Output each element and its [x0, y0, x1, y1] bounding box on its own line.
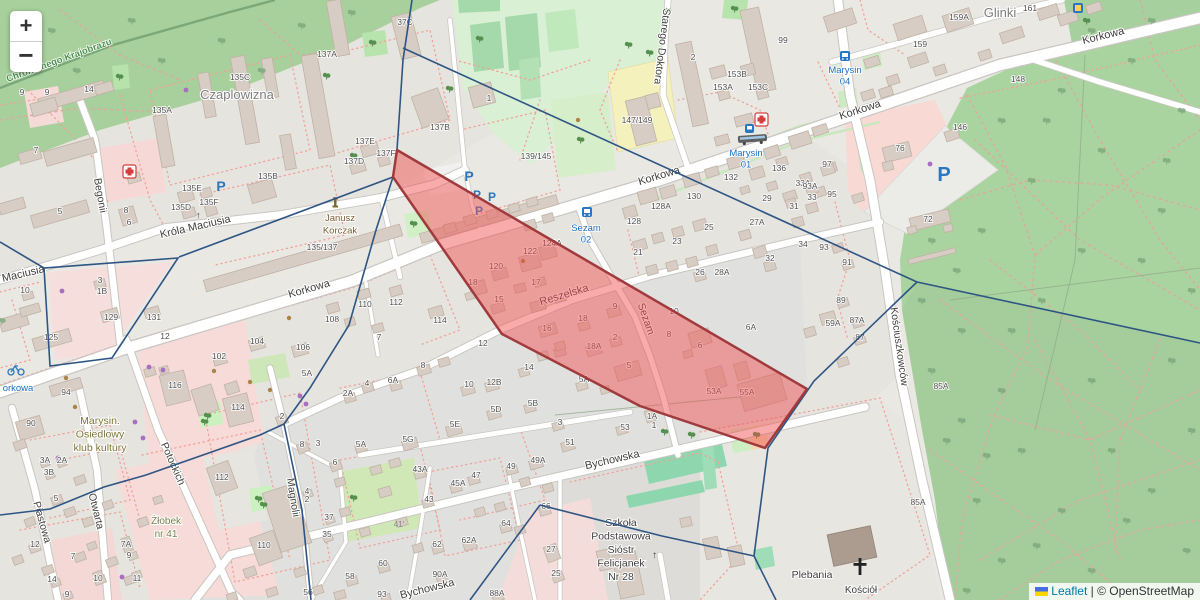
- svg-text:8: 8: [300, 439, 305, 449]
- svg-text:02: 02: [581, 235, 592, 246]
- svg-text:102: 102: [212, 351, 226, 361]
- svg-text:12: 12: [478, 338, 488, 348]
- svg-text:161: 161: [1023, 3, 1037, 13]
- svg-text:21: 21: [633, 247, 643, 257]
- svg-text:Glinki: Glinki: [984, 5, 1017, 20]
- svg-text:153A: 153A: [713, 82, 733, 92]
- svg-text:Żłobek: Żłobek: [151, 514, 182, 527]
- svg-text:23: 23: [672, 236, 682, 246]
- svg-text:49: 49: [506, 461, 516, 471]
- svg-text:Plebania: Plebania: [792, 569, 833, 581]
- svg-text:85A: 85A: [933, 381, 948, 391]
- svg-text:72: 72: [923, 214, 933, 224]
- svg-text:5A: 5A: [302, 368, 313, 378]
- svg-text:153C: 153C: [748, 82, 768, 92]
- svg-text:8: 8: [421, 360, 426, 370]
- svg-text:14: 14: [47, 574, 57, 584]
- svg-text:25: 25: [551, 568, 561, 578]
- svg-text:58: 58: [345, 571, 355, 581]
- svg-text:5E: 5E: [450, 419, 461, 429]
- svg-text:114: 114: [433, 315, 447, 325]
- svg-text:114: 114: [231, 402, 245, 412]
- svg-text:87A: 87A: [849, 315, 864, 325]
- svg-text:43A: 43A: [412, 464, 427, 474]
- svg-text:Kościół: Kościół: [845, 585, 878, 596]
- svg-text:148: 148: [1011, 74, 1025, 84]
- svg-text:128: 128: [627, 216, 641, 226]
- svg-text:88A: 88A: [489, 588, 504, 598]
- svg-text:49A: 49A: [530, 455, 545, 465]
- svg-text:2A: 2A: [343, 388, 354, 398]
- svg-text:P: P: [488, 190, 496, 204]
- svg-text:2: 2: [305, 494, 310, 504]
- svg-text:43: 43: [424, 494, 434, 504]
- svg-text:135F: 135F: [199, 197, 218, 207]
- svg-text:6A: 6A: [388, 375, 399, 385]
- svg-text:137F: 137F: [376, 148, 395, 158]
- svg-text:12B: 12B: [486, 377, 501, 387]
- svg-text:62A: 62A: [461, 535, 476, 545]
- svg-text:Podstawowa: Podstawowa: [591, 531, 651, 543]
- svg-text:Felicjanek: Felicjanek: [597, 558, 645, 570]
- svg-text:01: 01: [741, 160, 752, 171]
- svg-text:P: P: [216, 178, 225, 194]
- svg-text:135C: 135C: [230, 72, 250, 82]
- svg-text:95: 95: [827, 189, 837, 199]
- svg-text:99: 99: [778, 35, 788, 45]
- svg-text:12: 12: [30, 539, 40, 549]
- svg-text:137A: 137A: [317, 49, 337, 59]
- svg-text:2: 2: [691, 52, 696, 62]
- svg-text:5D: 5D: [491, 404, 502, 414]
- svg-text:33: 33: [807, 192, 817, 202]
- svg-text:137D: 137D: [344, 156, 364, 166]
- svg-text:94: 94: [61, 387, 71, 397]
- svg-text:Marysin: Marysin: [729, 148, 762, 159]
- svg-text:10: 10: [93, 573, 103, 583]
- svg-text:1: 1: [487, 93, 492, 103]
- svg-text:110: 110: [358, 299, 372, 309]
- svg-text:97: 97: [822, 159, 832, 169]
- svg-text:62: 62: [432, 539, 442, 549]
- svg-text:klub kultury: klub kultury: [73, 442, 127, 454]
- svg-text:90: 90: [26, 418, 36, 428]
- svg-text:3: 3: [558, 417, 563, 427]
- svg-text:128A: 128A: [651, 201, 671, 211]
- svg-text:59A: 59A: [825, 318, 840, 328]
- svg-text:5G: 5G: [402, 434, 413, 444]
- svg-text:137B: 137B: [430, 122, 450, 132]
- svg-text:56: 56: [303, 587, 313, 597]
- svg-text:27: 27: [546, 544, 556, 554]
- svg-text:27A: 27A: [749, 217, 764, 227]
- svg-text:29: 29: [762, 193, 772, 203]
- svg-text:9: 9: [127, 550, 132, 560]
- svg-text:10: 10: [464, 379, 474, 389]
- svg-text:159: 159: [913, 39, 927, 49]
- svg-text:1B: 1B: [97, 286, 108, 296]
- svg-text:139/145: 139/145: [521, 151, 552, 161]
- svg-text:2A: 2A: [57, 455, 68, 465]
- svg-text:25: 25: [704, 222, 714, 232]
- svg-text:47: 47: [471, 470, 481, 480]
- svg-text:135B: 135B: [258, 171, 278, 181]
- svg-text:31: 31: [789, 201, 799, 211]
- svg-text:125: 125: [44, 332, 58, 342]
- svg-text:64: 64: [501, 518, 511, 528]
- svg-text:1: 1: [652, 420, 657, 430]
- svg-text:9: 9: [20, 87, 25, 97]
- svg-text:9: 9: [45, 87, 50, 97]
- svg-text:Czaplowizna: Czaplowizna: [200, 87, 274, 102]
- svg-text:Marysin.: Marysin.: [80, 415, 120, 427]
- svg-text:5B: 5B: [528, 398, 539, 408]
- svg-text:110: 110: [257, 540, 271, 550]
- svg-text:93A: 93A: [802, 181, 817, 191]
- svg-text:136: 136: [772, 163, 786, 173]
- svg-text:3: 3: [98, 275, 103, 285]
- svg-text:112: 112: [389, 297, 403, 307]
- svg-text:146: 146: [953, 122, 967, 132]
- svg-text:Osiedlowy: Osiedlowy: [76, 429, 125, 441]
- svg-text:3B: 3B: [44, 467, 55, 477]
- svg-text:135A: 135A: [152, 105, 172, 115]
- svg-text:P: P: [464, 168, 473, 184]
- svg-text:2: 2: [280, 411, 285, 421]
- svg-text:37: 37: [324, 512, 334, 522]
- svg-text:129: 129: [104, 312, 118, 322]
- svg-text:5: 5: [58, 206, 63, 216]
- svg-text:Sióstr: Sióstr: [608, 544, 635, 556]
- svg-text:137E: 137E: [355, 136, 375, 146]
- svg-text:35: 35: [322, 529, 332, 539]
- svg-text:5: 5: [54, 493, 59, 503]
- svg-text:41': 41': [394, 520, 405, 529]
- svg-text:93: 93: [377, 589, 387, 599]
- svg-text:Janusz: Janusz: [325, 213, 355, 224]
- svg-text:135E: 135E: [182, 183, 202, 193]
- svg-text:76: 76: [895, 143, 905, 153]
- svg-text:85A: 85A: [910, 497, 925, 507]
- svg-text:112: 112: [215, 472, 229, 482]
- svg-text:orkowa: orkowa: [3, 383, 34, 394]
- svg-text:Nr 28: Nr 28: [608, 571, 634, 583]
- svg-text:116: 116: [168, 380, 182, 390]
- svg-text:6: 6: [333, 457, 338, 467]
- svg-text:6: 6: [127, 217, 132, 227]
- svg-text:28A: 28A: [714, 267, 729, 277]
- svg-text:7: 7: [34, 145, 39, 155]
- svg-text:93: 93: [819, 242, 829, 252]
- svg-text:5A: 5A: [356, 439, 367, 449]
- svg-text:P: P: [937, 164, 950, 186]
- svg-text:10: 10: [20, 285, 30, 295]
- svg-text:60: 60: [378, 558, 388, 568]
- svg-text:14: 14: [84, 84, 94, 94]
- svg-text:11: 11: [133, 573, 142, 583]
- svg-text:108: 108: [325, 314, 339, 324]
- svg-text:153B: 153B: [727, 69, 747, 79]
- svg-text:32: 32: [765, 253, 775, 263]
- svg-text:7: 7: [377, 332, 382, 342]
- svg-text:132: 132: [724, 172, 738, 182]
- svg-text:↑: ↑: [652, 550, 657, 561]
- svg-text:Sezam: Sezam: [571, 223, 601, 234]
- svg-text:Korczak: Korczak: [323, 226, 358, 237]
- svg-text:51: 51: [565, 437, 575, 447]
- svg-text:53: 53: [620, 422, 630, 432]
- svg-text:131: 131: [147, 312, 161, 322]
- svg-text:135/137: 135/137: [307, 242, 338, 252]
- svg-text:147/149: 147/149: [622, 115, 653, 125]
- svg-text:7A: 7A: [121, 539, 132, 549]
- svg-text:26: 26: [695, 267, 705, 277]
- svg-text:159A: 159A: [949, 12, 969, 22]
- svg-text:37C: 37C: [397, 17, 413, 27]
- svg-text:04: 04: [840, 77, 851, 88]
- svg-text:130: 130: [687, 191, 701, 201]
- svg-text:↑: ↑: [196, 210, 201, 220]
- svg-text:34: 34: [798, 239, 808, 249]
- svg-text:89: 89: [836, 295, 846, 305]
- svg-text:14: 14: [524, 362, 534, 372]
- svg-text:8: 8: [124, 205, 129, 215]
- svg-text:3: 3: [316, 438, 321, 448]
- svg-text:91: 91: [842, 257, 852, 267]
- svg-text:nr 41: nr 41: [155, 529, 178, 540]
- svg-text:12: 12: [160, 331, 170, 341]
- svg-text:9: 9: [65, 589, 70, 599]
- svg-text:106: 106: [296, 342, 310, 352]
- svg-text:7: 7: [71, 551, 76, 561]
- svg-text:45A: 45A: [450, 478, 465, 488]
- svg-text:6A: 6A: [746, 322, 757, 332]
- svg-text:Marysin: Marysin: [828, 65, 861, 76]
- svg-text:3A: 3A: [40, 455, 51, 465]
- svg-text:4: 4: [365, 378, 370, 388]
- svg-text:135D: 135D: [171, 202, 191, 212]
- svg-text:104: 104: [250, 336, 264, 346]
